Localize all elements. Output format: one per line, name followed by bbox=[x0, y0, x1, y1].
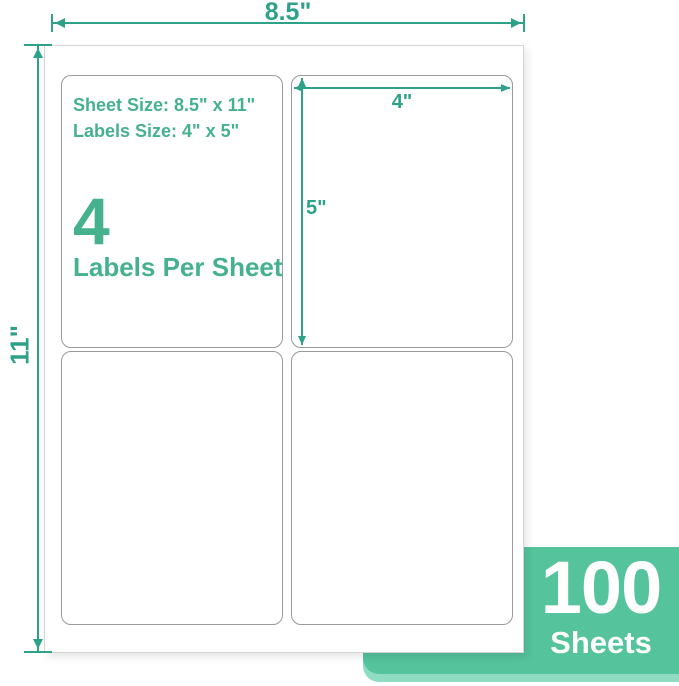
dimension-line bbox=[52, 22, 524, 24]
product-diagram: 100 Sheets Sheet Size: 8.5" x 11" Labels… bbox=[0, 0, 679, 686]
dimension-line bbox=[37, 45, 39, 652]
labels-size-line: Labels Size: 4" x 5" bbox=[73, 118, 255, 144]
label-bottom-right bbox=[291, 351, 513, 625]
labels-per-sheet-count: 4 bbox=[73, 188, 110, 254]
label-height-text: 5" bbox=[306, 197, 327, 220]
sheet-size-line: Sheet Size: 8.5" x 11" bbox=[73, 92, 255, 118]
label-top-left: Sheet Size: 8.5" x 11" Labels Size: 4" x… bbox=[61, 75, 283, 348]
label-bottom-left bbox=[61, 351, 283, 625]
sheet-width-text: 8.5" bbox=[52, 0, 524, 27]
dimension-line bbox=[301, 78, 303, 345]
label-sheet: Sheet Size: 8.5" x 11" Labels Size: 4" x… bbox=[44, 45, 524, 653]
badge-count: 100 bbox=[541, 551, 661, 625]
labels-per-sheet-caption: Labels Per Sheet bbox=[73, 252, 283, 283]
label-top-right: 4" 5" bbox=[291, 75, 513, 348]
dimension-tick bbox=[523, 14, 525, 32]
label-width-text: 4" bbox=[292, 91, 512, 114]
sheet-count-badge-text: 100 Sheets bbox=[523, 547, 679, 674]
arrow-up-icon bbox=[33, 48, 43, 58]
arrow-down-icon bbox=[33, 639, 43, 649]
sheet-height-text: 11" bbox=[5, 325, 36, 365]
arrow-right-icon bbox=[511, 18, 521, 28]
dimension-line bbox=[294, 87, 510, 89]
arrow-left-icon bbox=[55, 18, 65, 28]
arrow-down-icon bbox=[298, 336, 306, 345]
arrow-up-icon bbox=[298, 78, 306, 87]
dimension-tick bbox=[51, 14, 53, 32]
size-info: Sheet Size: 8.5" x 11" Labels Size: 4" x… bbox=[73, 92, 255, 144]
badge-unit: Sheets bbox=[550, 627, 652, 658]
